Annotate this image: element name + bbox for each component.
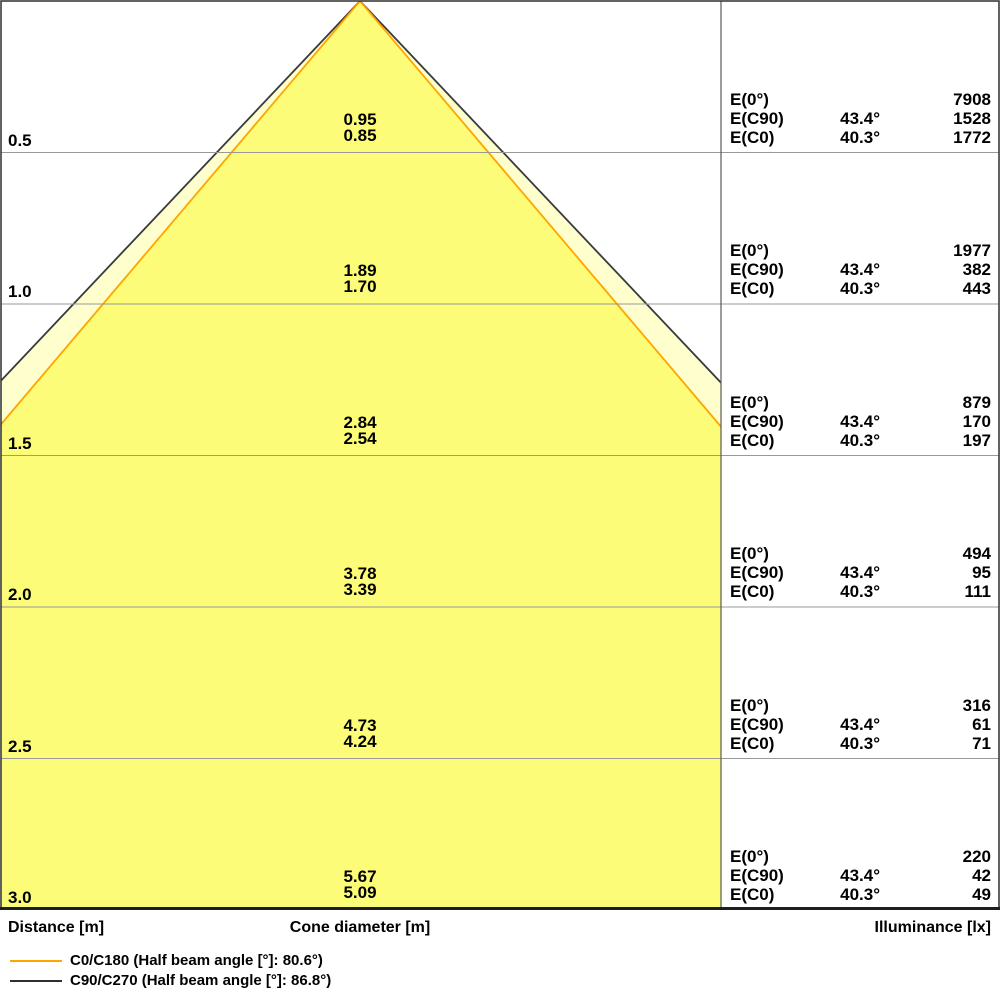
distance-label: 2.0 xyxy=(8,586,32,604)
legend-item-c0c180: C0/C180 (Half beam angle [°]: 80.6°) xyxy=(10,951,331,971)
e-row-label: E(C0) xyxy=(730,431,774,450)
e-row-label: E(0°) xyxy=(730,544,769,563)
axis-labels-row: Distance [m] Cone diameter [m] Illuminan… xyxy=(0,918,1000,938)
cone-diameter-values: 2.842.54 xyxy=(280,415,440,447)
e-row-value: 49 xyxy=(972,885,991,904)
labels-layer: 0.50.950.85E(0°)7908E(C90)43.4°1528E(C0)… xyxy=(0,0,1000,910)
e-row-angle: 43.4° xyxy=(840,109,880,128)
e-row-label: E(0°) xyxy=(730,90,769,109)
e-row-label: E(0°) xyxy=(730,847,769,866)
legend: C0/C180 (Half beam angle [°]: 80.6°) C90… xyxy=(10,951,331,991)
legend-line-c90c270-icon xyxy=(10,980,62,982)
cone-diameter-values: 0.950.85 xyxy=(280,112,440,144)
illuminance-row: E(C0)40.3°1772 xyxy=(730,128,992,147)
cone-diameter-inner: 1.70 xyxy=(280,279,440,295)
e-row-label: E(C0) xyxy=(730,128,774,147)
illuminance-row: E(C0)40.3°197 xyxy=(730,431,992,450)
distance-label: 2.5 xyxy=(8,738,32,756)
illuminance-block: E(0°)7908E(C90)43.4°1528E(C0)40.3°1772 xyxy=(730,90,992,147)
e-row-label: E(C90) xyxy=(730,563,784,582)
distance-label: 1.5 xyxy=(8,435,32,453)
illuminance-block: E(0°)316E(C90)43.4°61E(C0)40.3°71 xyxy=(730,696,992,753)
e-row-label: E(C90) xyxy=(730,866,784,885)
distance-axis-label: Distance [m] xyxy=(8,918,104,938)
e-row-angle: 40.3° xyxy=(840,431,880,450)
e-row-label: E(C0) xyxy=(730,582,774,601)
e-row-label: E(C90) xyxy=(730,412,784,431)
illuminance-row: E(C0)40.3°71 xyxy=(730,734,992,753)
distance-label: 1.0 xyxy=(8,283,32,301)
illuminance-row: E(C0)40.3°111 xyxy=(730,582,992,601)
illuminance-block: E(0°)879E(C90)43.4°170E(C0)40.3°197 xyxy=(730,393,992,450)
e-row-value: 42 xyxy=(972,866,991,885)
e-row-angle: 43.4° xyxy=(840,412,880,431)
e-row-value: 494 xyxy=(963,544,991,563)
cone-diameter-values: 1.891.70 xyxy=(280,263,440,295)
e-row-value: 7908 xyxy=(953,90,991,109)
illuminance-block: E(0°)494E(C90)43.4°95E(C0)40.3°111 xyxy=(730,544,992,601)
cone-diameter-values: 3.783.39 xyxy=(280,566,440,598)
illuminance-row: E(C90)43.4°1528 xyxy=(730,109,992,128)
illuminance-row: E(0°)220 xyxy=(730,847,992,866)
illuminance-row: E(C90)43.4°170 xyxy=(730,412,992,431)
e-row-angle: 43.4° xyxy=(840,260,880,279)
e-row-value: 95 xyxy=(972,563,991,582)
light-cone-diagram: 0.50.950.85E(0°)7908E(C90)43.4°1528E(C0)… xyxy=(0,0,1000,1000)
e-row-label: E(0°) xyxy=(730,696,769,715)
legend-label-c0c180: C0/C180 (Half beam angle [°]: 80.6°) xyxy=(70,951,323,971)
e-row-label: E(C0) xyxy=(730,885,774,904)
distance-label: 3.0 xyxy=(8,889,32,907)
cone-diameter-axis-label: Cone diameter [m] xyxy=(260,918,460,938)
illuminance-row: E(0°)879 xyxy=(730,393,992,412)
e-row-value: 111 xyxy=(965,582,992,601)
e-row-angle: 43.4° xyxy=(840,866,880,885)
e-row-label: E(0°) xyxy=(730,241,769,260)
e-row-angle: 43.4° xyxy=(840,715,880,734)
e-row-value: 1528 xyxy=(953,109,991,128)
illuminance-row: E(0°)494 xyxy=(730,544,992,563)
e-row-value: 316 xyxy=(963,696,991,715)
cone-diameter-inner: 3.39 xyxy=(280,582,440,598)
illuminance-block: E(0°)1977E(C90)43.4°382E(C0)40.3°443 xyxy=(730,241,992,298)
illuminance-row: E(C90)43.4°95 xyxy=(730,563,992,582)
illuminance-row: E(C90)43.4°382 xyxy=(730,260,992,279)
illuminance-row: E(0°)316 xyxy=(730,696,992,715)
e-row-value: 443 xyxy=(963,279,991,298)
illuminance-row: E(0°)7908 xyxy=(730,90,992,109)
e-row-angle: 40.3° xyxy=(840,279,880,298)
e-row-label: E(C0) xyxy=(730,279,774,298)
legend-label-c90c270: C90/C270 (Half beam angle [°]: 86.8°) xyxy=(70,971,331,991)
illuminance-row: E(C0)40.3°49 xyxy=(730,885,992,904)
e-row-value: 382 xyxy=(963,260,991,279)
cone-diameter-inner: 4.24 xyxy=(280,734,440,750)
e-row-value: 61 xyxy=(972,715,991,734)
e-row-angle: 40.3° xyxy=(840,734,880,753)
e-row-label: E(C90) xyxy=(730,715,784,734)
e-row-value: 879 xyxy=(963,393,991,412)
e-row-angle: 40.3° xyxy=(840,128,880,147)
cone-diameter-inner: 2.54 xyxy=(280,431,440,447)
e-row-angle: 40.3° xyxy=(840,582,880,601)
illuminance-row: E(C90)43.4°42 xyxy=(730,866,992,885)
e-row-value: 1977 xyxy=(953,241,991,260)
illuminance-row: E(C0)40.3°443 xyxy=(730,279,992,298)
cone-diameter-inner: 5.09 xyxy=(280,885,440,901)
e-row-value: 170 xyxy=(963,412,991,431)
e-row-angle: 43.4° xyxy=(840,563,880,582)
legend-item-c90c270: C90/C270 (Half beam angle [°]: 86.8°) xyxy=(10,971,331,991)
cone-diameter-inner: 0.85 xyxy=(280,128,440,144)
e-row-angle: 40.3° xyxy=(840,885,880,904)
cone-diameter-values: 5.675.09 xyxy=(280,869,440,901)
e-row-label: E(C0) xyxy=(730,734,774,753)
e-row-value: 220 xyxy=(963,847,991,866)
legend-line-c0c180-icon xyxy=(10,960,62,962)
e-row-value: 1772 xyxy=(953,128,991,147)
e-row-label: E(0°) xyxy=(730,393,769,412)
e-row-label: E(C90) xyxy=(730,109,784,128)
illuminance-row: E(0°)1977 xyxy=(730,241,992,260)
e-row-value: 71 xyxy=(972,734,991,753)
distance-label: 0.5 xyxy=(8,132,32,150)
e-row-value: 197 xyxy=(963,431,991,450)
cone-diameter-values: 4.734.24 xyxy=(280,718,440,750)
e-row-label: E(C90) xyxy=(730,260,784,279)
illuminance-block: E(0°)220E(C90)43.4°42E(C0)40.3°49 xyxy=(730,847,992,904)
illuminance-axis-label: Illuminance [lx] xyxy=(720,918,991,938)
illuminance-row: E(C90)43.4°61 xyxy=(730,715,992,734)
